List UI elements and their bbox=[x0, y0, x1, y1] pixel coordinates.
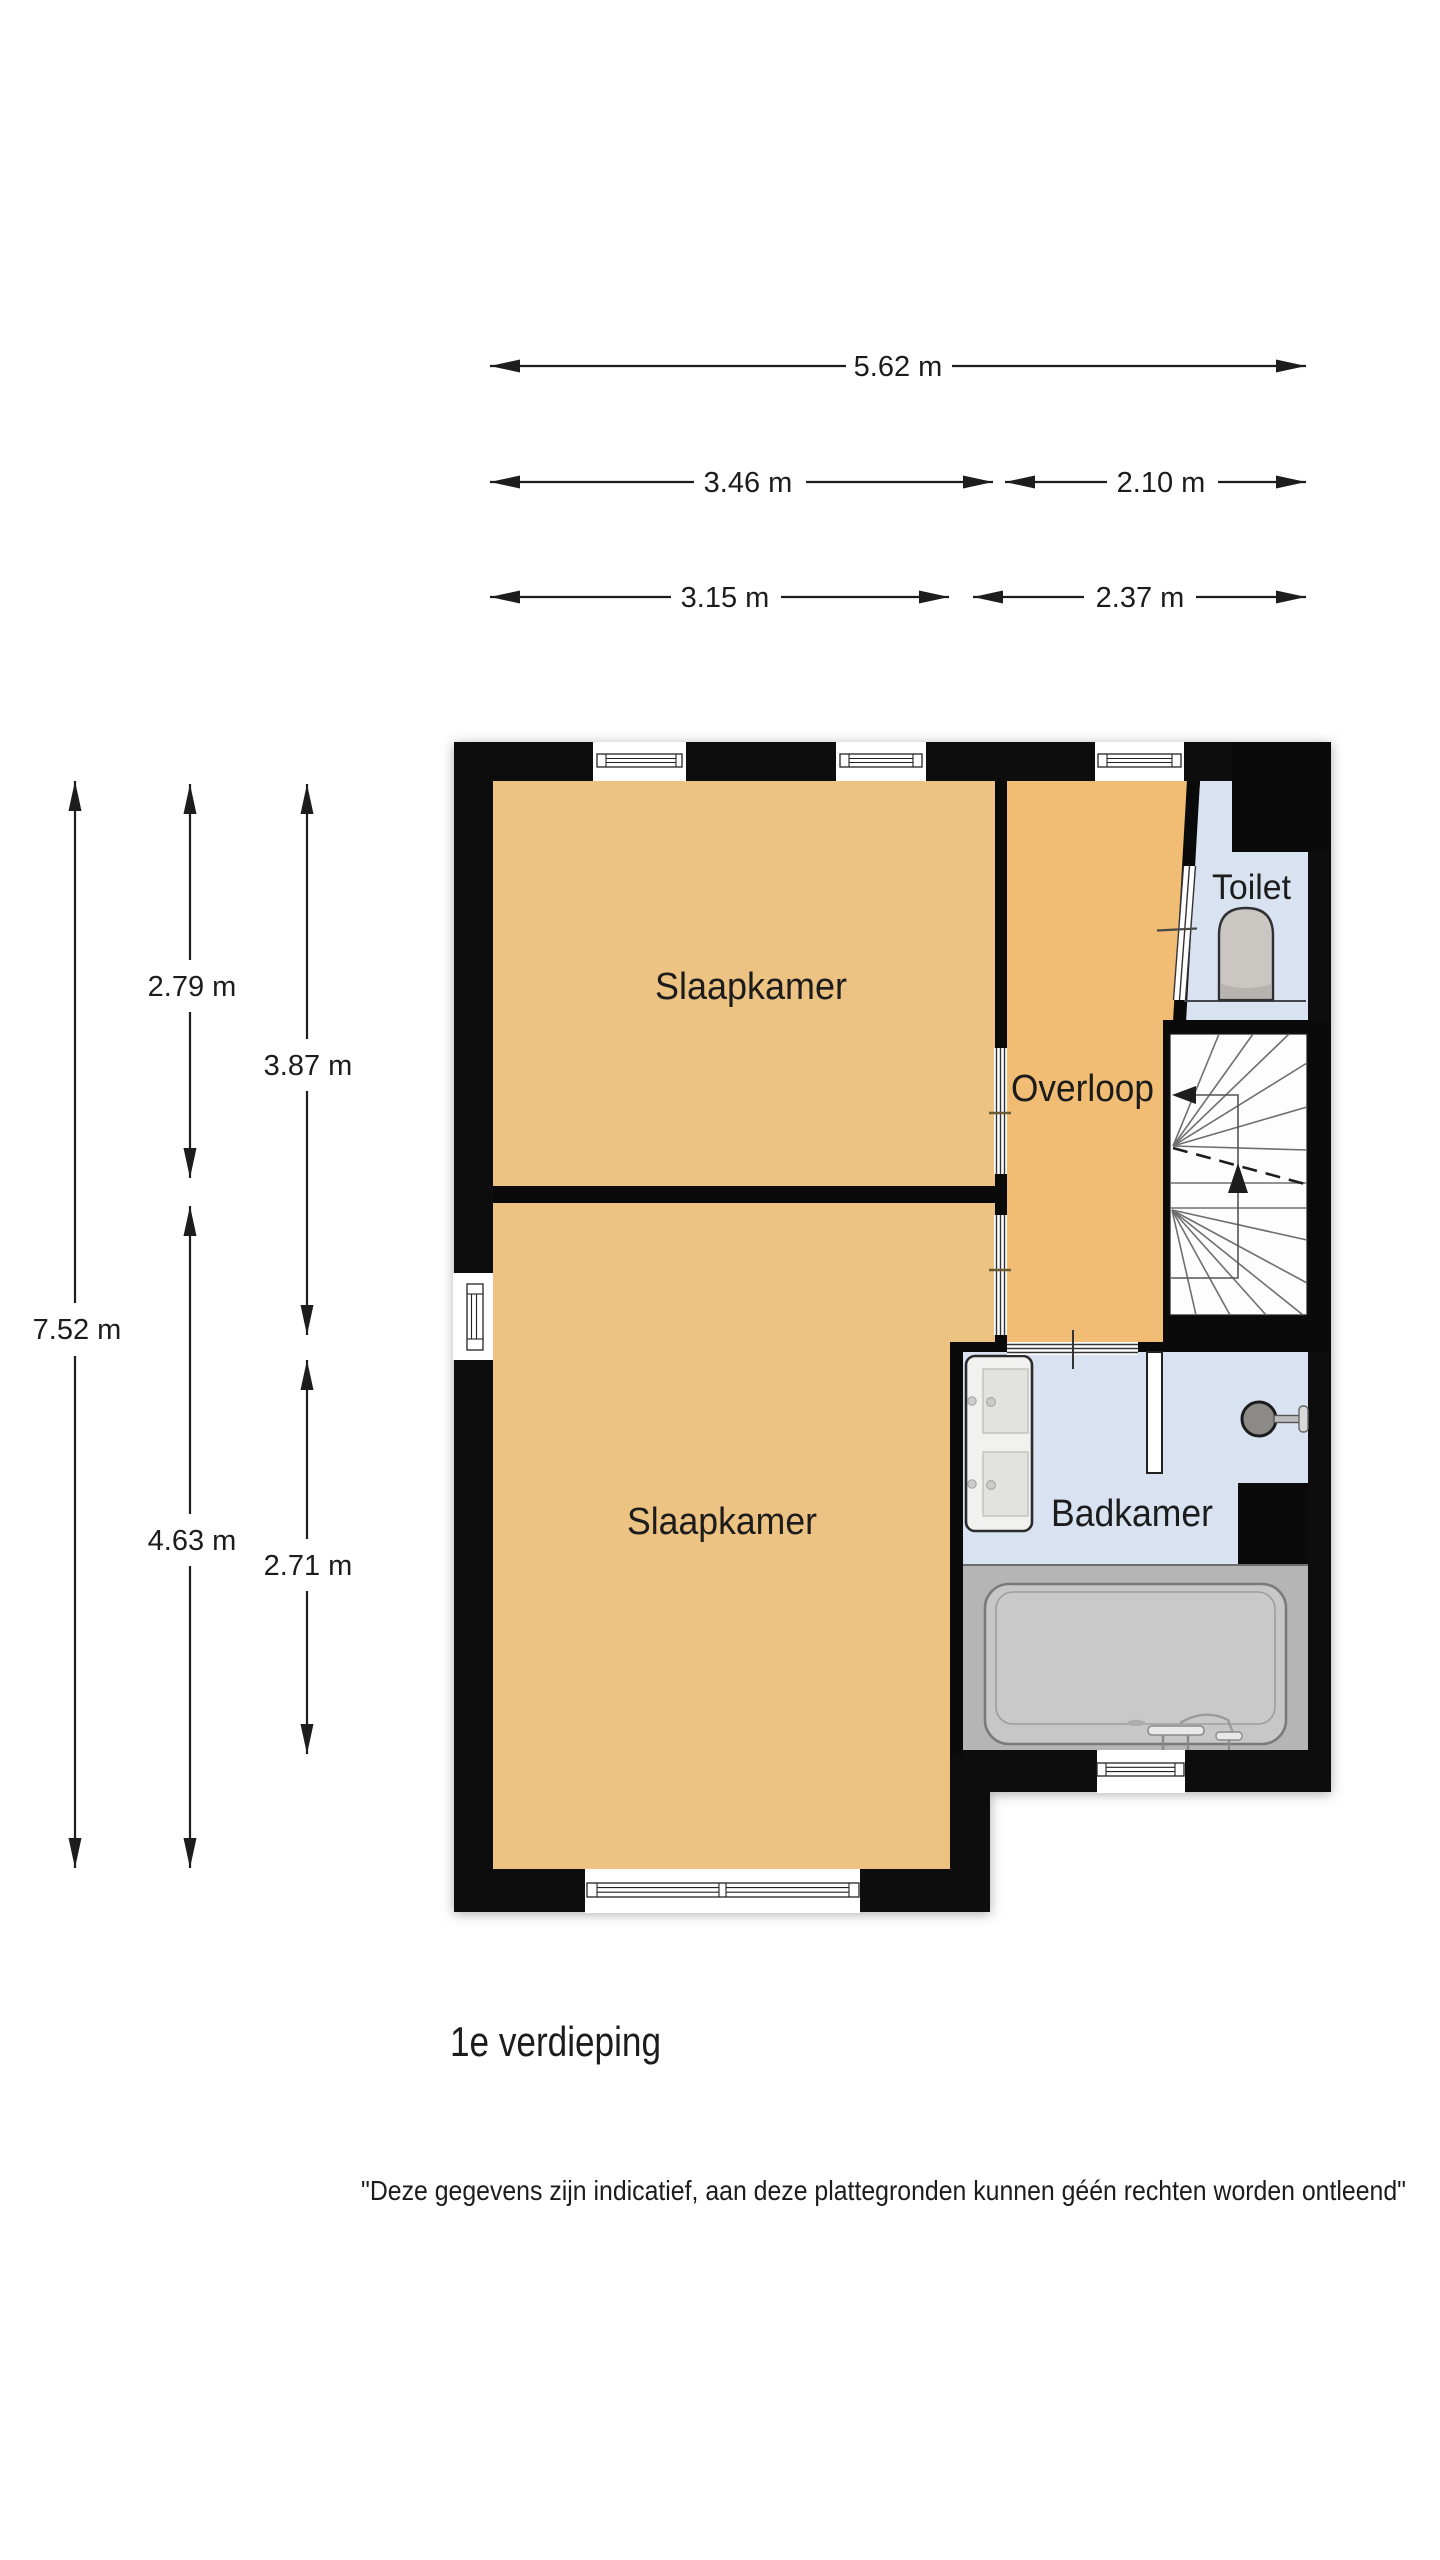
svg-text:3.46 m: 3.46 m bbox=[704, 467, 793, 499]
svg-text:2.37 m: 2.37 m bbox=[1096, 582, 1185, 614]
svg-text:4.63 m: 4.63 m bbox=[148, 1525, 237, 1557]
svg-text:7.52 m: 7.52 m bbox=[33, 1314, 122, 1346]
svg-text:2.71 m: 2.71 m bbox=[264, 1550, 353, 1582]
svg-text:Overloop: Overloop bbox=[1011, 1068, 1154, 1110]
svg-text:3.87 m: 3.87 m bbox=[264, 1050, 353, 1082]
svg-text:3.15 m: 3.15 m bbox=[681, 582, 770, 614]
svg-text:"Deze gegevens zijn indicatief: "Deze gegevens zijn indicatief, aan deze… bbox=[361, 2175, 1406, 2206]
svg-text:Slaapkamer: Slaapkamer bbox=[655, 966, 847, 1008]
svg-text:5.62 m: 5.62 m bbox=[854, 351, 943, 383]
svg-text:Badkamer: Badkamer bbox=[1051, 1493, 1213, 1535]
svg-text:Slaapkamer: Slaapkamer bbox=[627, 1501, 817, 1543]
svg-text:1e verdieping: 1e verdieping bbox=[450, 2018, 661, 2065]
svg-text:2.79 m: 2.79 m bbox=[148, 971, 237, 1003]
svg-text:Toilet: Toilet bbox=[1212, 868, 1291, 907]
svg-text:2.10 m: 2.10 m bbox=[1117, 467, 1206, 499]
